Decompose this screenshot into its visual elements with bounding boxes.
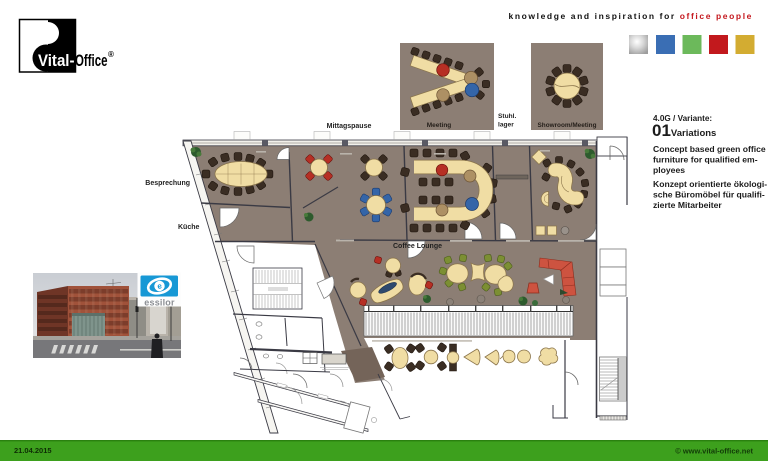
svg-text:Office: Office	[75, 51, 108, 70]
svg-text:Küche: Küche	[178, 224, 200, 231]
svg-text:01Variations: 01Variations	[652, 121, 716, 140]
svg-text:Meeting: Meeting	[427, 122, 452, 129]
svg-text:Stuhl.lager: Stuhl.lager	[498, 113, 516, 129]
svg-text:Mittagspause: Mittagspause	[327, 123, 372, 130]
svg-text:Showroom/Meeting: Showroom/Meeting	[538, 122, 597, 129]
svg-text:Concept based green officefurn: Concept based green officefurniture for …	[653, 144, 766, 175]
svg-text:Vital-: Vital-	[38, 51, 75, 70]
svg-text:© www.vital-office.net: © www.vital-office.net	[675, 447, 753, 456]
svg-text:Konzept orientierte ökologi-sc: Konzept orientierte ökologi-sche Büromöb…	[653, 179, 767, 210]
svg-text:®: ®	[108, 50, 114, 59]
svg-text:essilor: essilor	[144, 298, 175, 308]
svg-text:Besprechung: Besprechung	[145, 180, 190, 187]
svg-text:21.04.2015: 21.04.2015	[14, 446, 52, 455]
svg-text:Coffee Lounge: Coffee Lounge	[393, 243, 442, 250]
svg-text:knowledge and inspiration for: knowledge and inspiration for office peo…	[509, 11, 754, 21]
